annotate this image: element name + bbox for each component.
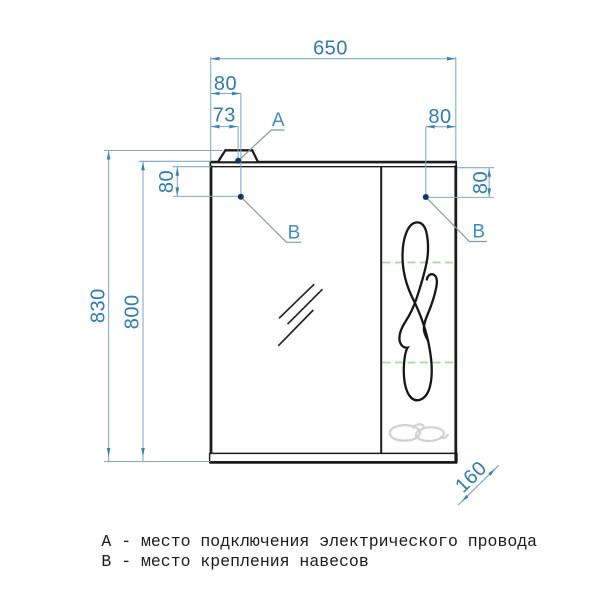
svg-text:73: 73 bbox=[213, 104, 236, 126]
svg-text:80: 80 bbox=[470, 171, 492, 194]
svg-text:80: 80 bbox=[156, 170, 178, 193]
svg-text:80: 80 bbox=[214, 73, 237, 95]
svg-text:80: 80 bbox=[428, 106, 451, 128]
svg-text:В: В bbox=[288, 222, 301, 243]
svg-text:В - место крепления навесов: В - место крепления навесов bbox=[101, 552, 368, 571]
svg-text:А: А bbox=[272, 110, 285, 131]
svg-text:800: 800 bbox=[122, 294, 144, 329]
svg-text:650: 650 bbox=[313, 38, 348, 60]
svg-text:В: В bbox=[472, 222, 485, 243]
svg-text:830: 830 bbox=[88, 288, 110, 323]
svg-text:А - место подключения электрич: А - место подключения электрического про… bbox=[101, 532, 537, 551]
